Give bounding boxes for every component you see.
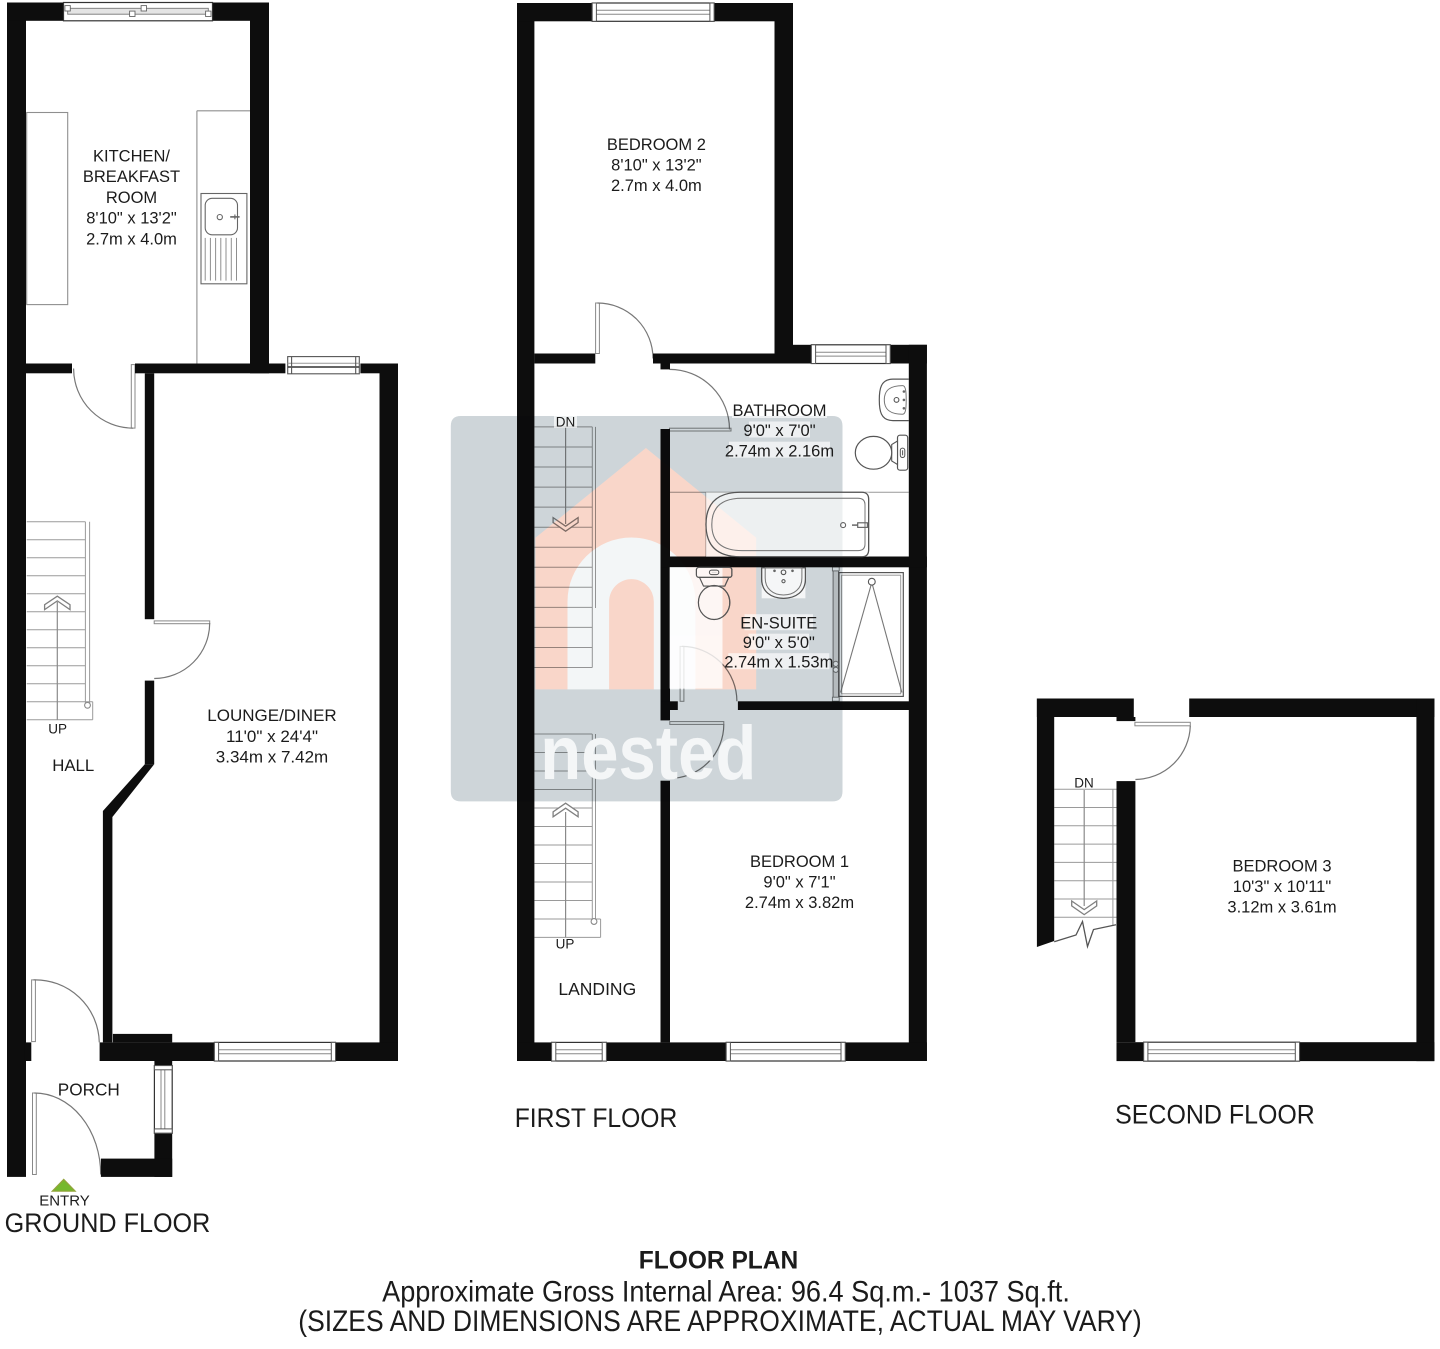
svg-text:3.12m x 3.61m: 3.12m x 3.61m [1227, 899, 1336, 917]
svg-text:2.7m x 4.0m: 2.7m x 4.0m [86, 230, 177, 248]
svg-text:8'10" x 13'2": 8'10" x 13'2" [86, 210, 177, 228]
svg-text:SECOND FLOOR: SECOND FLOOR [1115, 1100, 1315, 1130]
svg-text:10'3" x 10'11": 10'3" x 10'11" [1233, 878, 1332, 896]
svg-text:9'0" x 7'1": 9'0" x 7'1" [763, 873, 835, 891]
svg-text:9'0" x 7'0": 9'0" x 7'0" [743, 422, 815, 440]
svg-text:PORCH: PORCH [58, 1080, 120, 1100]
svg-text:DN: DN [556, 415, 576, 430]
svg-text:LANDING: LANDING [558, 979, 636, 999]
svg-text:FLOOR PLAN: FLOOR PLAN [639, 1247, 799, 1275]
svg-text:BEDROOM 3: BEDROOM 3 [1232, 857, 1331, 875]
svg-text:2.7m x 4.0m: 2.7m x 4.0m [611, 177, 702, 195]
svg-text:BEDROOM 2: BEDROOM 2 [607, 136, 706, 154]
svg-text:Approximate Gross Internal Are: Approximate Gross Internal Area: 96.4 Sq… [382, 1276, 1070, 1309]
svg-text:BEDROOM 1: BEDROOM 1 [750, 853, 849, 871]
svg-text:DN: DN [1074, 776, 1094, 791]
svg-text:2.74m x 1.53m: 2.74m x 1.53m [724, 654, 833, 672]
svg-text:11'0" x 24'4": 11'0" x 24'4" [226, 727, 318, 746]
svg-text:9'0" x 5'0": 9'0" x 5'0" [743, 634, 815, 652]
svg-text:2.74m x 3.82m: 2.74m x 3.82m [745, 894, 854, 912]
svg-text:GROUND FLOOR: GROUND FLOOR [5, 1208, 211, 1238]
svg-text:8'10" x 13'2": 8'10" x 13'2" [611, 157, 702, 175]
svg-text:nested: nested [540, 711, 756, 796]
svg-text:(SIZES AND DIMENSIONS ARE APPR: (SIZES AND DIMENSIONS ARE APPROXIMATE, A… [298, 1305, 1142, 1338]
svg-text:EN-SUITE: EN-SUITE [740, 615, 817, 633]
svg-text:UP: UP [48, 722, 67, 737]
svg-text:KITCHEN/: KITCHEN/ [93, 148, 170, 166]
svg-text:HALL: HALL [52, 756, 94, 775]
svg-text:2.74m x 2.16m: 2.74m x 2.16m [725, 442, 834, 460]
svg-text:BREAKFAST: BREAKFAST [83, 168, 180, 186]
svg-text:3.34m x 7.42m: 3.34m x 7.42m [216, 747, 328, 766]
svg-text:ROOM: ROOM [106, 189, 157, 207]
svg-text:LOUNGE/DINER: LOUNGE/DINER [207, 706, 336, 725]
svg-text:BATHROOM: BATHROOM [732, 402, 826, 420]
svg-text:UP: UP [556, 936, 575, 951]
svg-text:FIRST FLOOR: FIRST FLOOR [515, 1103, 678, 1133]
